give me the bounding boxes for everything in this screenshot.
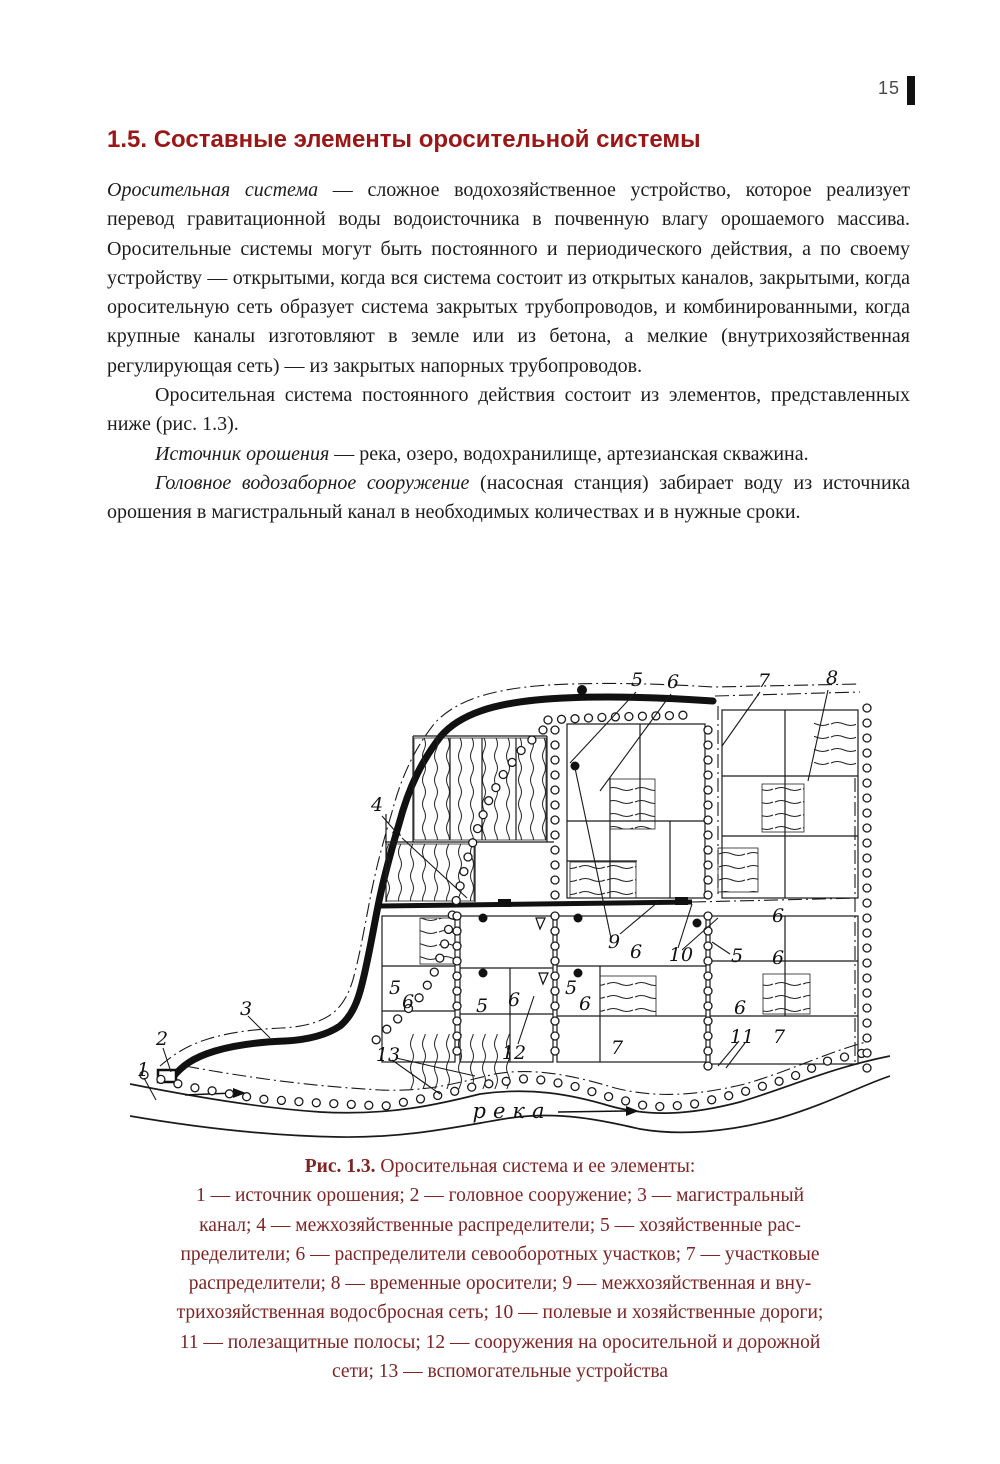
figure-number-label: 6	[630, 941, 642, 963]
irrigation-map-drawing: 567849610656565656612711713321 река	[130, 666, 890, 1138]
figure-number-label: 9	[608, 931, 620, 953]
figure-number-label: 5	[731, 945, 743, 967]
caption-legend-line: сети; 13 — вспомогательные устройства	[85, 1357, 915, 1386]
figure-number-label: 7	[758, 670, 771, 692]
figure-number-label: 8	[826, 667, 838, 689]
paragraph-4: Головное водозаборное сооружение (насосн…	[107, 469, 910, 528]
figure-number-label: 5	[389, 977, 401, 999]
figure-number-label: 11	[730, 1026, 754, 1048]
caption-figure-ref: Рис. 1.3.	[305, 1156, 376, 1177]
figure-number-label: 12	[502, 1042, 526, 1064]
caption-legend-line: 11 — полезащитные полосы; 12 — сооружени…	[85, 1328, 915, 1357]
figure-caption: Рис. 1.3. Оросительная система и ее элем…	[85, 1152, 915, 1386]
paragraph-1-lead: Оросительная система	[107, 179, 318, 201]
river-label: река	[473, 1099, 552, 1123]
figure-number-label: 5	[476, 995, 488, 1017]
figure-number-label: 7	[611, 1037, 624, 1059]
caption-legend-line: пределители; 6 — распределители севообор…	[85, 1240, 915, 1269]
paragraph-1: Оросительная система — сложное водохозяй…	[107, 176, 910, 381]
figure-number-label: 3	[240, 998, 252, 1020]
figure-number-label: 1	[137, 1059, 149, 1081]
figure-irrigation-map: 567849610656565656612711713321 река	[130, 666, 890, 1138]
figure-number-label: 5	[565, 977, 577, 999]
paragraph-4-lead: Головное водозаборное сооружение	[155, 472, 469, 494]
paragraph-3: Источник орошения — река, озеро, водохра…	[107, 440, 910, 469]
figure-number-label: 6	[772, 905, 784, 927]
figure-number-label: 6	[667, 671, 679, 693]
book-page: 15 1.5. Составные элементы оросительной …	[0, 0, 1000, 1464]
caption-title: Оросительная система и ее элементы:	[376, 1156, 696, 1177]
figure-number-label: 7	[773, 1026, 786, 1048]
caption-legend-line: 1 — источник орошения; 2 — головное соор…	[85, 1181, 915, 1210]
paragraph-3-text: — река, озеро, водохранилище, артезианск…	[329, 443, 808, 465]
page-number: 15	[878, 78, 900, 99]
figure-number-label: 6	[772, 947, 784, 969]
caption-legend-line: канал; 4 — межхозяйственные распределите…	[85, 1211, 915, 1240]
page-edge-bar	[907, 76, 915, 105]
figure-number-label: 6	[402, 991, 414, 1013]
paragraph-2-text: Оросительная система постоянного действи…	[107, 384, 910, 435]
caption-title-line: Рис. 1.3. Оросительная система и ее элем…	[85, 1152, 915, 1181]
figure-number-label: 13	[376, 1044, 400, 1066]
figure-number-label: 6	[579, 993, 591, 1015]
figure-number-label: 4	[370, 794, 383, 816]
section-heading: 1.5. Составные элементы оросительной сис…	[107, 126, 917, 154]
body-text: Оросительная система — сложное водохозяй…	[107, 176, 910, 528]
caption-legend-line: распределители; 8 — временные оросители;…	[85, 1269, 915, 1298]
figure-number-label: 10	[669, 944, 693, 966]
paragraph-3-lead: Источник орошения	[155, 443, 329, 465]
middle-canal	[378, 902, 692, 906]
caption-legend-line: трихозяйственная водосбросная сеть; 10 —…	[85, 1298, 915, 1327]
figure-number-label: 6	[508, 989, 520, 1011]
paragraph-1-text: — сложное водохозяйственное устройство, …	[107, 179, 910, 377]
paragraph-2: Оросительная система постоянного действи…	[107, 381, 910, 440]
figure-number-label: 5	[631, 669, 643, 691]
figure-number-label: 2	[155, 1028, 168, 1050]
figure-number-label: 6	[734, 997, 746, 1019]
